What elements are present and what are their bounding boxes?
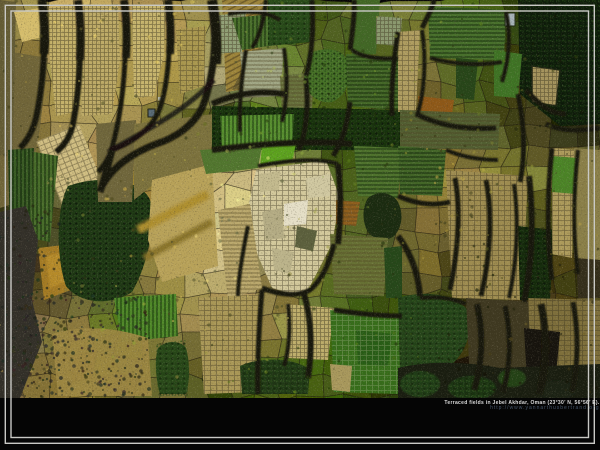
svg-text:http://www.yannarthusbertrand.: http://www.yannarthusbertrand.org	[490, 405, 599, 411]
